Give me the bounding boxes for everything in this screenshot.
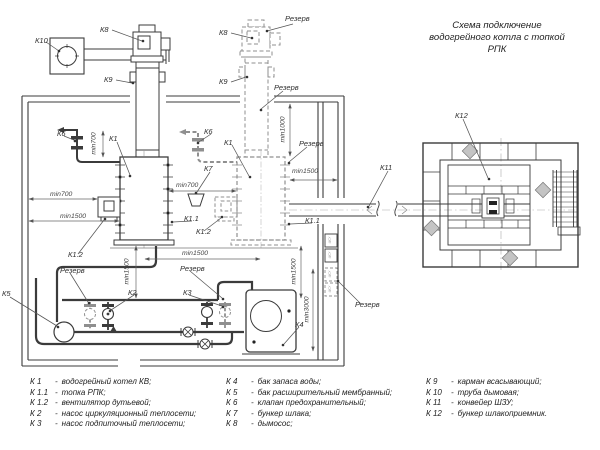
legend-item-id: К 1.1 [30, 388, 55, 399]
legend-item-separator: - [451, 409, 454, 420]
legend-item-id: К 1.2 [30, 398, 55, 409]
label-k2: К2 [128, 288, 137, 297]
legend-item-separator: - [251, 377, 254, 388]
legend-item-id: К 6 [226, 398, 251, 409]
legend-item-desc: клапан предохранительный; [258, 398, 366, 409]
label-k11: К11 [380, 163, 392, 172]
blower-fan-k12-active [98, 197, 120, 221]
legend-item-desc: насос подпиточный теплосети; [62, 419, 186, 430]
legend-item-desc: бак расширительный мембранный; [258, 388, 392, 399]
legend-item-separator: - [251, 388, 254, 399]
label-k8-active: К8 [100, 25, 109, 34]
legend-item-id: К 4 [226, 377, 251, 388]
legend-item-id: К 1 [30, 377, 55, 388]
legend-item: К 10-труба дымовая; [426, 388, 594, 399]
legend-column-3: К 9-карман всасывающий; К 10-труба дымов… [426, 377, 594, 430]
drawing-title: Схема подключение водогрейного котла с т… [398, 20, 596, 56]
legend: К 1-водогрейный котел КВ; К 1.1-топка РП… [30, 377, 596, 430]
legend-item-desc: карман всасывающий; [458, 377, 542, 388]
label-k3: К3 [183, 288, 192, 297]
legend-item-id: К 11 [426, 398, 451, 409]
slag-hopper-plan-k12 [423, 138, 578, 272]
label-reserve-exhauster: Резерв [285, 14, 310, 23]
cabinet-tag: ЩСУ [327, 252, 331, 259]
dim-min1500-vertical-right: min1500 [291, 258, 298, 284]
legend-item-separator: - [55, 409, 58, 420]
label-k7: К7 [204, 164, 213, 173]
legend-item: К 12-бункер шлакоприемник. [426, 409, 594, 420]
cabinet-tag: ЩСУ [327, 286, 331, 293]
legend-item-separator: - [55, 388, 58, 399]
legend-item: К 2-насос циркуляционный теплосети; [30, 409, 226, 420]
title-line-1: Схема подключение [398, 20, 596, 32]
feed-pump-k3 [201, 302, 213, 328]
legend-item-id: К 7 [226, 409, 251, 420]
legend-item-separator: - [55, 398, 58, 409]
legend-item-desc: конвейер ШЗУ; [458, 398, 514, 409]
label-reserve-pump-k2: Резерв [60, 266, 85, 275]
dim-min1500-right: min1500 [292, 168, 318, 175]
legend-item-id: К 12 [426, 409, 451, 420]
legend-item-desc: вентилятор дутьевой; [62, 398, 151, 409]
label-k8-reserve: К8 [219, 28, 228, 37]
legend-item-desc: бункер шлакоприемник. [458, 409, 547, 420]
legend-item-desc: дымосос; [258, 419, 293, 430]
label-k1-active: К1 [109, 134, 118, 143]
legend-item: К 6-клапан предохранительный; [226, 398, 426, 409]
legend-item-separator: - [451, 388, 454, 399]
legend-item-id: К 2 [30, 409, 55, 420]
cabinet-tag: ЩСУ [327, 237, 331, 244]
legend-item-separator: - [451, 398, 454, 409]
legend-item-id: К 5 [226, 388, 251, 399]
conveyor-k11 [289, 201, 575, 216]
legend-item: К 7-бункер шлака; [226, 409, 426, 420]
label-k6-active: К6 [57, 129, 66, 138]
legend-column-2: К 4-бак запаса воды; К 5-бак расширитель… [226, 377, 426, 430]
legend-item-desc: водогрейный котел КВ; [62, 377, 152, 388]
legend-item-id: К 8 [226, 419, 251, 430]
legend-item: К 1.1-топка РПК; [30, 388, 226, 399]
label-k5: К5 [2, 289, 11, 298]
dim-min1000-vertical: min1000 [280, 116, 287, 142]
suction-duct-k9-active [130, 62, 165, 157]
dim-min700-mid: min700 [176, 182, 198, 189]
legend-item-desc: насос циркуляционный теплосети; [62, 409, 196, 420]
label-k1-2-active: К1.2 [68, 250, 83, 259]
label-k4: К4 [295, 320, 304, 329]
legend-item-separator: - [55, 419, 58, 430]
circulation-pump-k2 [102, 302, 117, 332]
stairs-k12 [553, 170, 580, 235]
label-k1-1-reserve: К1.1 [305, 216, 320, 225]
boiler-k1-active [114, 150, 174, 250]
dim-min3000-vertical: min3000 [304, 296, 311, 322]
legend-item-desc: труба дымовая; [458, 388, 519, 399]
label-k1-1-active: К1.1 [184, 214, 199, 223]
dim-min1500-mid: min1500 [182, 250, 208, 257]
legend-item-desc: топка РПК; [62, 388, 106, 399]
legend-item: К 1.2-вентилятор дутьевой; [30, 398, 226, 409]
legend-column-1: К 1-водогрейный котел КВ; К 1.1-топка РП… [30, 377, 226, 430]
label-k9-reserve: К9 [219, 77, 228, 86]
label-k12: К12 [455, 111, 468, 120]
boiler-k1-reserve [231, 150, 291, 250]
legend-item: К 1-водогрейный котел КВ; [30, 377, 226, 388]
legend-item-id: К 3 [30, 419, 55, 430]
label-reserve-boiler: Резерв [299, 139, 324, 148]
label-k1-2-reserve: К1.2 [196, 227, 211, 236]
legend-item-separator: - [251, 419, 254, 430]
label-k1-reserve: К1 [224, 138, 233, 147]
legend-item-id: К 10 [426, 388, 451, 399]
legend-item: К 11-конвейер ШЗУ; [426, 398, 594, 409]
legend-item: К 8-дымосос; [226, 419, 426, 430]
inline-valve-fittings [181, 327, 212, 349]
legend-item-separator: - [451, 377, 454, 388]
legend-item-separator: - [251, 409, 254, 420]
title-line-2: водогрейного котла с топкой [398, 32, 596, 44]
label-reserve-duct: Резерв [274, 83, 299, 92]
label-reserve-pump-k3: Резерв [180, 264, 205, 273]
smoke-exhauster-k8-reserve [240, 20, 280, 57]
title-line-3: РПК [398, 44, 596, 56]
expansion-tank-k5 [54, 322, 74, 342]
legend-item-desc: бак запаса воды; [258, 377, 321, 388]
label-k9-active: К9 [104, 75, 113, 84]
cabinet-tag: ЩСУ [327, 271, 331, 278]
dim-min1500-vertical-left: min1500 [124, 258, 131, 284]
dim-min1500-left: min1500 [60, 213, 86, 220]
legend-item-desc: бункер шлака; [258, 409, 312, 420]
safety-valve-k6-active [57, 127, 120, 162]
legend-item: К 4-бак запаса воды; [226, 377, 426, 388]
legend-item-id: К 9 [426, 377, 451, 388]
circulation-pump-k2-reserve [84, 302, 96, 330]
water-storage-tank-k4 [242, 290, 300, 354]
dim-min700-left: min700 [50, 191, 72, 198]
boiler-connection-drawing: К10 К8 К9 К8 К9 К6 К6 К1 К1 К7 К11 К12 К… [0, 0, 600, 450]
suction-duct-k9-reserve [239, 57, 274, 157]
dim-min700-vertical: min700 [91, 132, 98, 154]
smoke-exhauster-k8-active [131, 25, 170, 62]
legend-item: К 3-насос подпиточный теплосети; [30, 419, 226, 430]
legend-item: К 5-бак расширительный мембранный; [226, 388, 426, 399]
slag-bunker-k7 [188, 194, 204, 206]
legend-item-separator: - [55, 377, 58, 388]
label-k10: К10 [35, 36, 48, 45]
legend-item-separator: - [251, 398, 254, 409]
label-reserve-cabinet: Резерв [355, 300, 380, 309]
label-k6-reserve: К6 [204, 127, 213, 136]
legend-item: К 9-карман всасывающий; [426, 377, 594, 388]
